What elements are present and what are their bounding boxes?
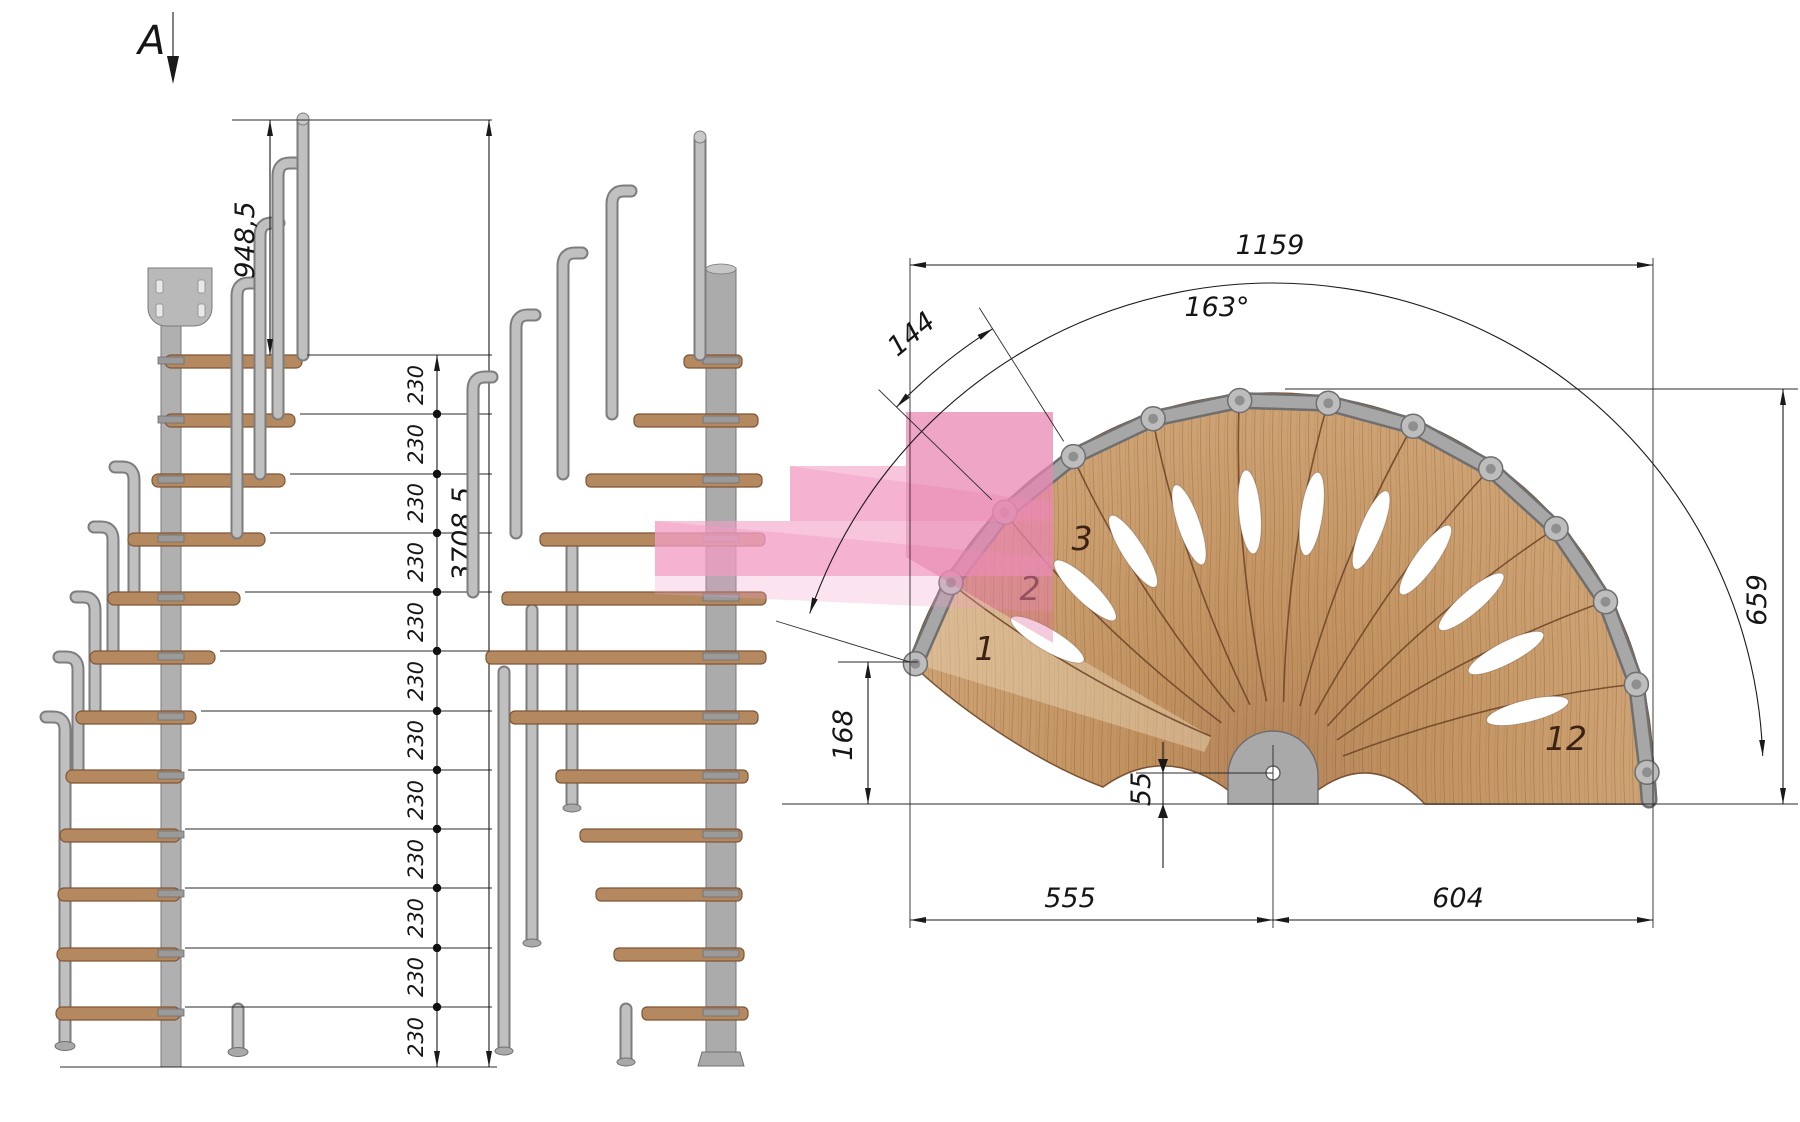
section-label: A xyxy=(135,18,165,64)
post-foot xyxy=(617,1058,635,1066)
dim-handrail-height: 948,5 xyxy=(230,201,261,278)
dim-right-height: 659 xyxy=(1742,574,1773,626)
step xyxy=(634,414,758,427)
staircase-drawing-canvas: A xyxy=(0,0,1800,1122)
step-number-3: 3 xyxy=(1072,519,1093,558)
pole-base xyxy=(698,1052,744,1066)
handrail-posts-left xyxy=(46,467,134,1051)
rear-posts xyxy=(495,548,581,1055)
dim-step-arc: 144 xyxy=(882,306,941,363)
dim-riser: 230 xyxy=(404,1017,428,1057)
dim-left-span: 555 xyxy=(1044,883,1096,914)
dim-riser: 230 xyxy=(404,542,428,582)
dim-riser: 230 xyxy=(404,780,428,820)
dim-riser: 230 xyxy=(404,365,428,405)
dim-left-drop: 168 xyxy=(828,709,859,761)
step xyxy=(128,533,265,546)
dim-riser: 230 xyxy=(404,720,428,760)
dim-riser: 230 xyxy=(404,424,428,464)
pole-cap xyxy=(706,264,736,274)
dim-right-span: 604 xyxy=(1432,883,1484,914)
step xyxy=(90,651,215,664)
dim-riser: 230 xyxy=(404,839,428,879)
arrow-icon xyxy=(1158,804,1168,818)
post-foot xyxy=(55,1042,75,1051)
post-cap xyxy=(297,113,309,125)
post-cap xyxy=(694,131,706,143)
section-a-marker: A xyxy=(135,12,179,84)
step-number-1: 1 xyxy=(975,629,996,668)
center-pole xyxy=(706,268,736,1062)
dim-riser: 230 xyxy=(404,898,428,938)
dim-riser: 230 xyxy=(404,483,428,523)
dim-angle: 163° xyxy=(1184,292,1249,323)
middle-elevation-view xyxy=(473,131,766,1066)
dim-riser: 230 xyxy=(404,661,428,701)
post-foot xyxy=(228,1048,248,1057)
dim-total-width: 1159 xyxy=(1236,230,1305,261)
dim-riser: 230 xyxy=(404,602,428,642)
section-arrow-icon xyxy=(167,56,179,84)
left-elevation-view: A xyxy=(46,12,497,1067)
technical-drawing: A xyxy=(0,0,1800,1122)
dim-riser: 230 xyxy=(404,957,428,997)
step-number-12: 12 xyxy=(1545,719,1587,758)
dim-pole-offset: 55 xyxy=(1126,772,1157,806)
